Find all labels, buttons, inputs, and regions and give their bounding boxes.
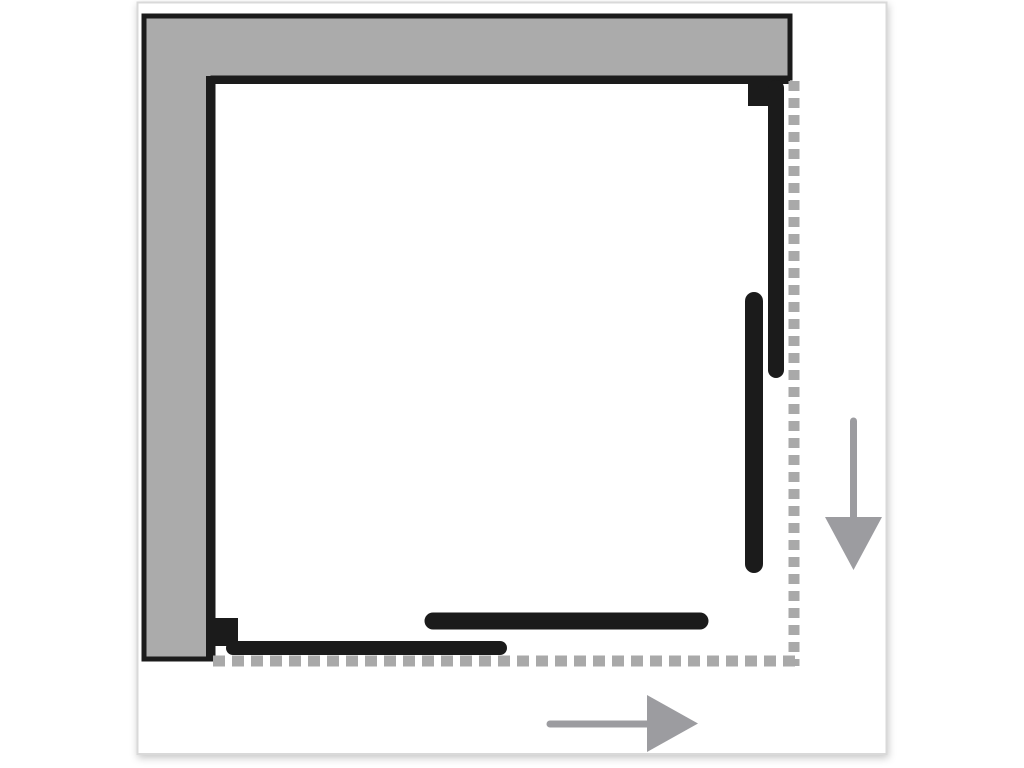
wall-inner-profile-left [206, 76, 215, 661]
diagram-page [0, 0, 1024, 768]
wall-inner-profile-top [210, 76, 790, 84]
shower-enclosure-top-view-diagram [0, 0, 1024, 768]
